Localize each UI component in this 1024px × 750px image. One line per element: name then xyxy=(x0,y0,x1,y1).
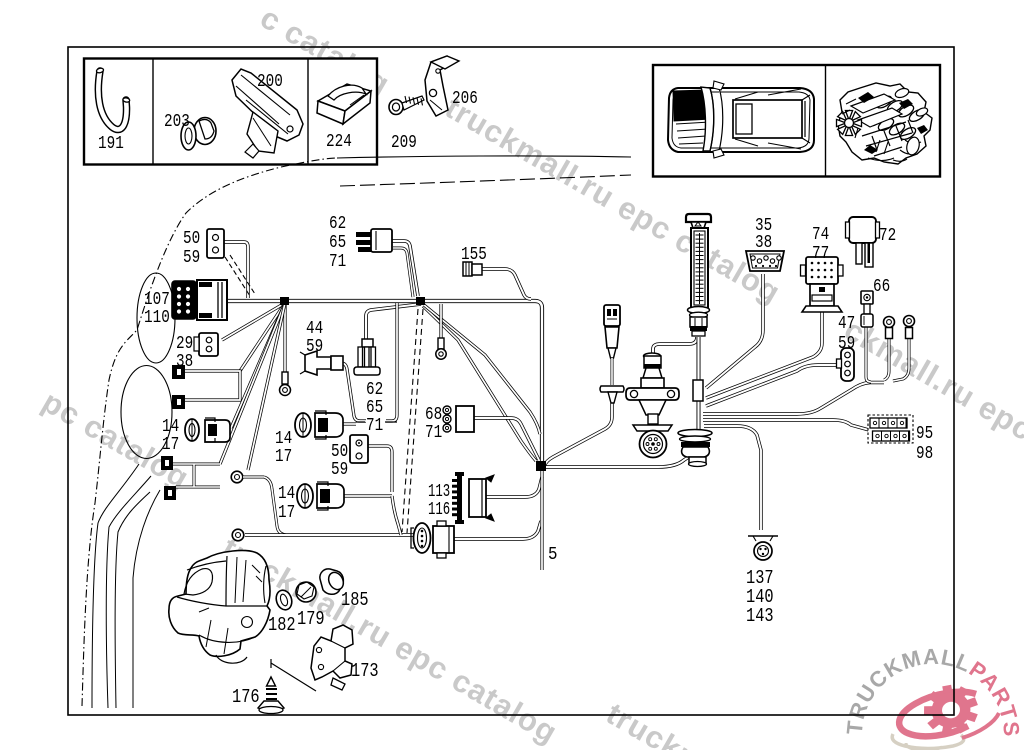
svg-text:47: 47 xyxy=(838,314,855,334)
svg-text:98: 98 xyxy=(916,444,933,464)
svg-text:14: 14 xyxy=(162,417,179,437)
svg-text:200: 200 xyxy=(257,72,283,92)
svg-text:113: 113 xyxy=(428,482,450,502)
svg-text:59: 59 xyxy=(306,337,323,357)
svg-text:14: 14 xyxy=(275,429,292,449)
svg-text:66: 66 xyxy=(873,277,890,297)
svg-text:107: 107 xyxy=(144,290,170,310)
svg-text:77: 77 xyxy=(812,244,829,264)
svg-text:29: 29 xyxy=(176,334,193,354)
svg-text:185: 185 xyxy=(341,589,369,611)
svg-text:62: 62 xyxy=(366,380,383,400)
svg-text:110: 110 xyxy=(144,308,170,328)
svg-text:14: 14 xyxy=(278,484,295,504)
svg-text:65: 65 xyxy=(366,398,383,418)
svg-text:62: 62 xyxy=(329,214,346,234)
svg-text:50: 50 xyxy=(183,229,200,249)
svg-text:59: 59 xyxy=(838,334,855,354)
svg-text:68: 68 xyxy=(425,405,442,425)
svg-text:50: 50 xyxy=(331,442,348,462)
svg-text:59: 59 xyxy=(331,460,348,480)
svg-text:74: 74 xyxy=(812,225,829,245)
svg-text:173: 173 xyxy=(351,660,379,682)
svg-text:71: 71 xyxy=(425,423,442,443)
svg-text:72: 72 xyxy=(879,226,896,246)
svg-text:95: 95 xyxy=(916,424,933,444)
svg-text:206: 206 xyxy=(452,89,478,109)
svg-text:191: 191 xyxy=(98,134,124,154)
svg-text:5: 5 xyxy=(548,545,558,565)
svg-text:17: 17 xyxy=(275,447,292,467)
svg-text:209: 209 xyxy=(391,133,417,153)
svg-text:17: 17 xyxy=(278,503,295,523)
svg-text:143: 143 xyxy=(746,605,774,627)
svg-text:203: 203 xyxy=(164,112,190,132)
svg-text:59: 59 xyxy=(183,248,200,268)
svg-text:155: 155 xyxy=(461,245,487,265)
svg-text:71: 71 xyxy=(366,416,383,436)
svg-text:44: 44 xyxy=(306,319,323,339)
svg-text:17: 17 xyxy=(162,435,179,455)
svg-text:65: 65 xyxy=(329,233,346,253)
svg-text:71: 71 xyxy=(329,252,346,272)
svg-text:38: 38 xyxy=(755,233,772,253)
svg-text:176: 176 xyxy=(232,686,260,708)
svg-text:179: 179 xyxy=(297,608,325,630)
svg-text:116: 116 xyxy=(428,500,450,520)
svg-text:182: 182 xyxy=(268,614,296,636)
svg-text:224: 224 xyxy=(326,132,352,152)
